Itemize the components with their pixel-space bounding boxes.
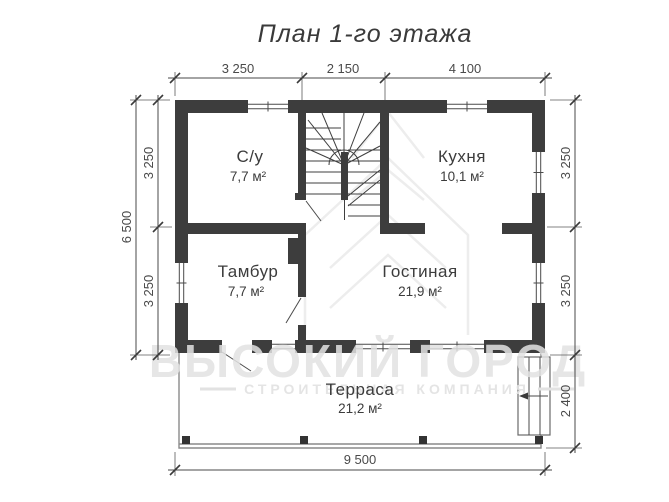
terrace-post <box>535 436 543 444</box>
bathroom-door <box>306 201 321 221</box>
dimension-right: 3 250 3 250 2 400 <box>546 95 582 453</box>
window <box>532 152 545 193</box>
room-name: Кухня <box>438 147 486 166</box>
dimension-bottom: 9 500 <box>168 452 552 476</box>
room-area: 10,1 м² <box>440 169 484 184</box>
dim-label: 3 250 <box>558 147 573 180</box>
staircase <box>306 113 380 220</box>
terrace-post <box>182 436 190 444</box>
dim-label: 2 150 <box>327 61 360 76</box>
floor-plan-page: План 1-го этажа <box>0 0 669 502</box>
room-name: Терраса <box>326 380 395 399</box>
room-name: Гостиная <box>382 262 457 281</box>
room-label-vestibule: Тамбур 7,7 м² <box>218 262 279 299</box>
room-name: С/у <box>237 147 264 166</box>
room-area: 7,7 м² <box>230 169 267 184</box>
dim-label: 3 250 <box>141 275 156 308</box>
dim-label: 6 500 <box>119 211 134 244</box>
dim-label: 3 250 <box>222 61 255 76</box>
room-label-kitchen: Кухня 10,1 м² <box>438 147 486 184</box>
terrace-post <box>419 436 427 444</box>
window <box>532 263 545 303</box>
dim-label: 2 400 <box>558 385 573 418</box>
room-area: 21,2 м² <box>338 401 382 416</box>
vestibule-door <box>286 298 301 323</box>
window <box>447 100 487 113</box>
dim-label: 4 100 <box>449 61 482 76</box>
window <box>248 100 288 113</box>
dim-label: 3 250 <box>558 275 573 308</box>
room-label-terrace: Терраса 21,2 м² <box>326 380 395 416</box>
room-label-living-room: Гостиная 21,9 м² <box>382 262 457 299</box>
room-label-bathroom: С/у 7,7 м² <box>230 147 267 184</box>
page-title: План 1-го этажа <box>258 20 473 48</box>
room-area: 7,7 м² <box>228 284 265 299</box>
dimension-left: 3 250 3 250 6 500 <box>119 95 172 360</box>
terrace-post <box>300 436 308 444</box>
dimension-top: 3 250 2 150 4 100 <box>168 61 552 100</box>
floor-plan-drawing: План 1-го этажа <box>0 0 669 502</box>
dim-label: 3 250 <box>141 147 156 180</box>
room-area: 21,9 м² <box>398 284 442 299</box>
room-name: Тамбур <box>218 262 279 281</box>
dim-label: 9 500 <box>344 452 377 467</box>
window <box>175 263 188 303</box>
